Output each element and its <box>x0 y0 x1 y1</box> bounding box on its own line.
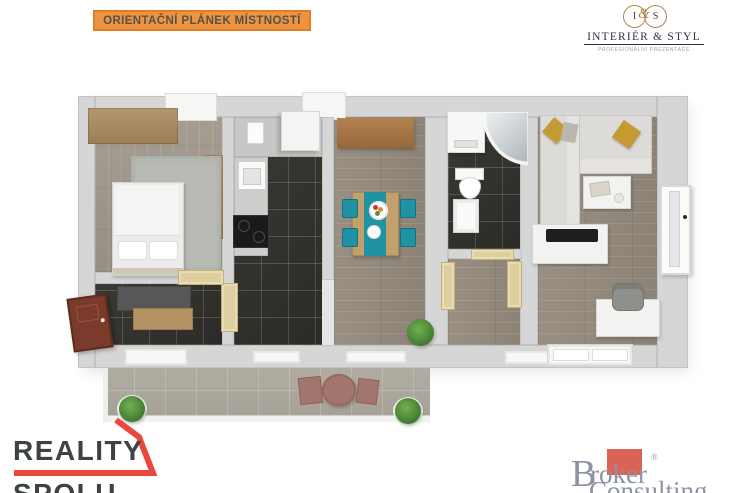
broker-consulting-logo: B roker ® Consulting <box>560 438 740 493</box>
broker-reg-mark: ® <box>651 453 658 462</box>
reality-spolu-line1: REALITY <box>13 437 143 465</box>
monogram-ampersand: & <box>638 6 650 23</box>
page: ORIENTAČNÍ PLÁNEK MÍSTNOSTÍ I S & INTERI… <box>0 0 740 493</box>
reality-spolu-line2: SPOLU <box>13 480 117 493</box>
broker-word2: Consulting <box>589 478 708 493</box>
reality-pointer-line <box>0 0 740 493</box>
